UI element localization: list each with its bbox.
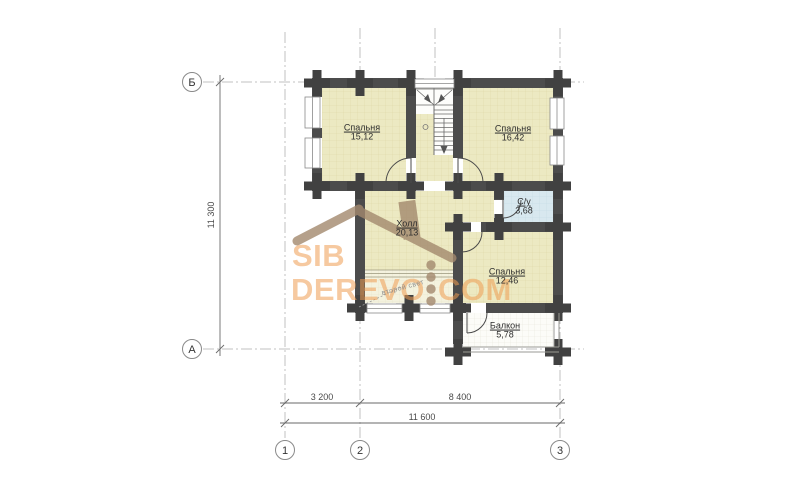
window: [415, 79, 454, 88]
dimension-bottom-right: 8 400: [449, 392, 472, 402]
room-area: 16,42: [495, 134, 531, 143]
window: [550, 98, 564, 129]
logo-roof-left-slope: [297, 209, 359, 241]
floor-plan-page: SIB DEREVO COM Спальня 15,12 Спальня 16,…: [0, 0, 800, 501]
room-area: 5,78: [490, 331, 520, 340]
window: [550, 136, 564, 165]
window: [305, 138, 320, 168]
room-label-bathroom: С/у 3,68: [515, 198, 533, 217]
room-area: 15,12: [344, 133, 380, 142]
axis-bubble-row-a: А: [182, 339, 202, 359]
room-area: 3,68: [515, 207, 533, 216]
axis-bubble-row-b: Б: [182, 72, 202, 92]
dimension-bottom-total: 11 600: [409, 412, 436, 422]
room-area: 12,46: [489, 277, 525, 286]
axis-bubble-col-1: 1: [275, 440, 295, 460]
window: [305, 97, 320, 128]
room-label-bedroom-3: Спальня 12,46: [489, 268, 525, 287]
room-label-bedroom-1: Спальня 15,12: [344, 124, 380, 143]
room-label-balcony: Балкон 5,78: [490, 322, 520, 341]
room-label-hall: Холл 20,13: [396, 220, 419, 239]
dimension-bottom-left: 3 200: [311, 392, 334, 402]
room-area: 20,13: [396, 229, 419, 238]
floor-plan-canvas: [0, 0, 800, 501]
watermark-line-1: SIB: [292, 240, 345, 271]
axis-bubble-col-3: 3: [550, 440, 570, 460]
dimension-vertical-total: 11 300: [206, 202, 216, 229]
axis-bubble-col-2: 2: [350, 440, 370, 460]
room-label-bedroom-2: Спальня 16,42: [495, 125, 531, 144]
